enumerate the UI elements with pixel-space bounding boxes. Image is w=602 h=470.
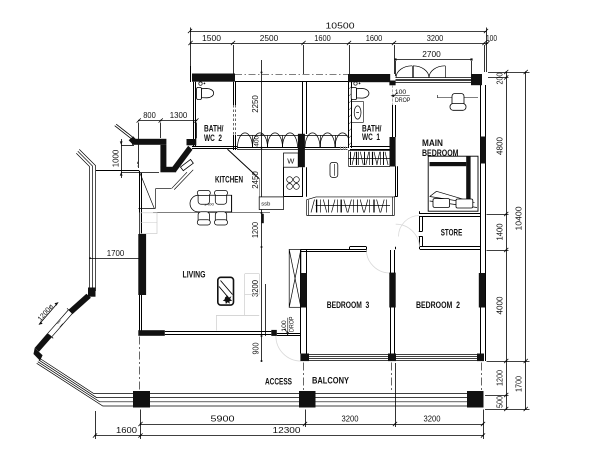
svg-text:4000: 4000	[496, 296, 505, 315]
svg-text:3200: 3200	[427, 34, 444, 43]
svg-text:1700: 1700	[107, 249, 125, 258]
svg-text:3200: 3200	[342, 415, 360, 424]
svg-text:5900: 5900	[211, 415, 236, 424]
svg-text:WC 1: WC 1	[362, 132, 380, 142]
svg-text:LIVING: LIVING	[183, 269, 206, 279]
svg-text:BALCONY: BALCONY	[312, 375, 350, 385]
svg-text:BEDROOM 2: BEDROOM 2	[416, 300, 460, 310]
svg-text:900: 900	[251, 342, 260, 355]
svg-text:1600: 1600	[116, 426, 138, 435]
svg-text:DROP: DROP	[289, 317, 296, 333]
svg-text:W: W	[287, 157, 295, 166]
svg-text:ssb: ssb	[261, 202, 270, 208]
svg-text:2500: 2500	[260, 34, 279, 43]
svg-text:ACCESS: ACCESS	[265, 376, 292, 386]
svg-text:1600: 1600	[314, 34, 331, 43]
svg-text:2450: 2450	[251, 171, 260, 189]
svg-text:1400: 1400	[496, 223, 505, 241]
svg-text:1200: 1200	[251, 221, 260, 238]
svg-text:800: 800	[143, 111, 156, 120]
svg-text:KITCHEN: KITCHEN	[215, 174, 243, 184]
svg-text:4800: 4800	[496, 136, 505, 155]
svg-text:500: 500	[496, 395, 505, 408]
svg-text:100: 100	[395, 89, 407, 96]
svg-text:STORE: STORE	[441, 227, 463, 237]
svg-text:2700: 2700	[422, 50, 441, 59]
svg-text:MAIN: MAIN	[422, 138, 443, 148]
svg-text:1700: 1700	[514, 375, 523, 392]
svg-text:2250: 2250	[251, 95, 260, 113]
svg-text:1000: 1000	[112, 149, 121, 167]
svg-text:1200: 1200	[496, 369, 505, 386]
svg-text:100: 100	[281, 320, 288, 332]
svg-text:12300: 12300	[273, 426, 302, 435]
svg-text:BATH/: BATH/	[204, 123, 224, 133]
svg-text:100: 100	[486, 34, 498, 43]
svg-text:1300: 1300	[170, 111, 188, 120]
svg-text:10400: 10400	[514, 206, 523, 231]
svg-text:1500: 1500	[202, 34, 222, 43]
svg-text:WC 2: WC 2	[204, 133, 222, 143]
svg-text:3200: 3200	[424, 415, 442, 424]
svg-text:BEDROOM: BEDROOM	[422, 148, 459, 158]
svg-text:200: 200	[496, 72, 505, 85]
svg-text:BEDROOM 3: BEDROOM 3	[327, 300, 370, 310]
svg-text:10500: 10500	[326, 22, 356, 31]
svg-text:DROP: DROP	[395, 97, 411, 104]
svg-text:1600: 1600	[366, 34, 383, 43]
